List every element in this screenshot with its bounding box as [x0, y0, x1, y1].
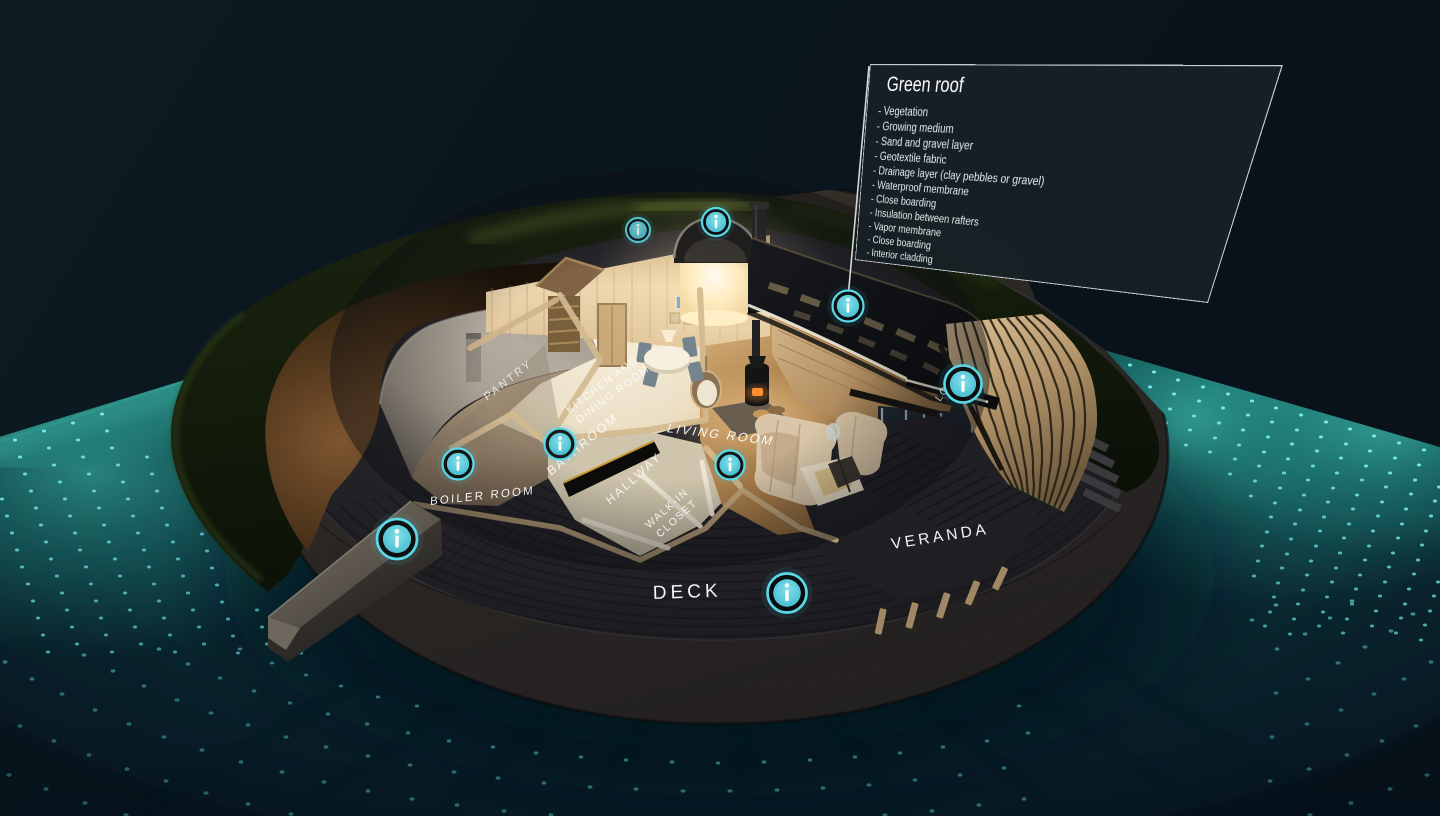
- svg-text:DECK: DECK: [652, 581, 721, 604]
